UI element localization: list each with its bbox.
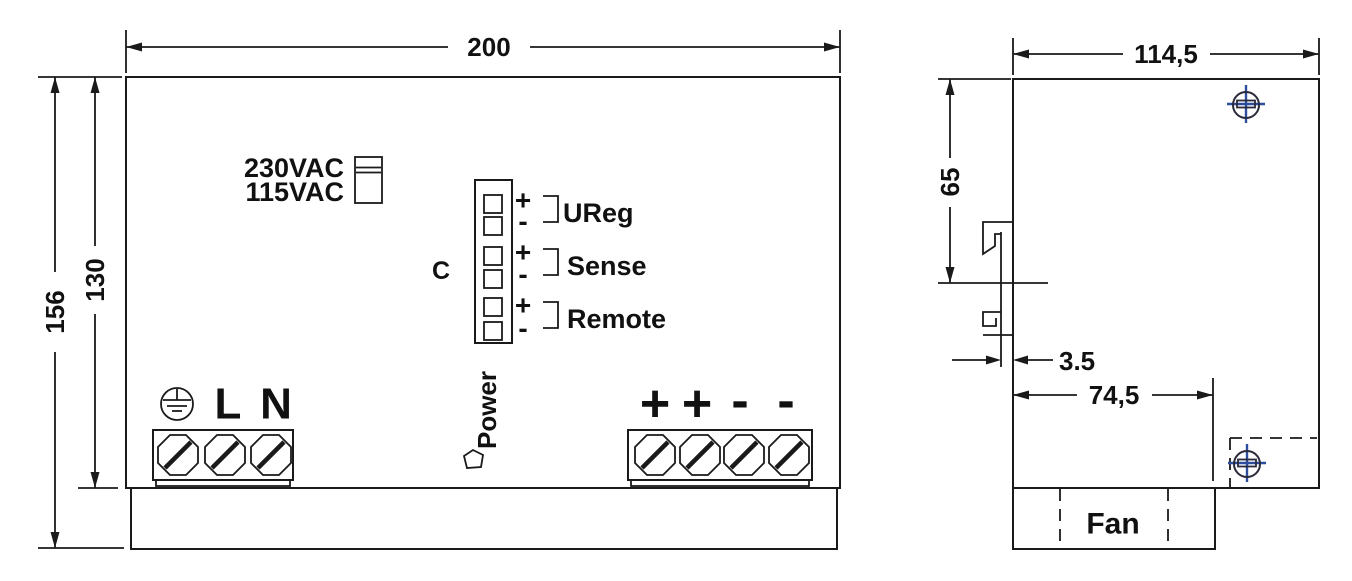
dimension-clip-3-5: 3.5	[952, 346, 1095, 376]
dimension-width-200: 200	[126, 30, 840, 73]
mounting-screw-icon-top[interactable]	[1227, 85, 1265, 123]
pin-group-sense: + - Sense	[515, 237, 647, 290]
minus-label: -	[518, 259, 527, 290]
dimension-height-156: 156	[38, 77, 124, 548]
voltage-option-115: 115VAC	[245, 177, 344, 207]
screw-terminal-icon[interactable]	[251, 435, 291, 475]
arrowhead-right	[1197, 391, 1213, 400]
terminal-block-foot	[156, 480, 290, 486]
mounting-screw-icon-bottom[interactable]	[1228, 444, 1266, 482]
minus-label: -	[518, 313, 527, 344]
dimension-value: 156	[40, 290, 70, 333]
ac-input-terminals: L N	[153, 380, 293, 487]
fan-label: Fan	[1086, 508, 1139, 541]
dimension-din-65: 65	[935, 79, 1048, 283]
connector-pin	[484, 195, 502, 213]
minus-label: -	[518, 206, 527, 237]
voltage-selector: 230VAC 115VAC	[244, 153, 382, 207]
connector-pin	[484, 270, 502, 288]
dimension-value: 74,5	[1089, 380, 1140, 410]
arrowhead-down	[946, 267, 955, 283]
side-view: Fan 114,5	[935, 38, 1319, 549]
arrowhead-up	[91, 77, 100, 93]
connector-label: C	[432, 257, 450, 285]
neutral-terminal-label: N	[260, 380, 292, 429]
dc-plus-label: +	[640, 375, 670, 433]
arrowhead-down	[91, 472, 100, 488]
screw-terminal-icon[interactable]	[680, 435, 720, 475]
arrowhead-right	[824, 43, 840, 52]
dimension-value: 65	[935, 168, 965, 197]
dimension-value: 114,5	[1134, 39, 1198, 69]
connector-body	[475, 180, 512, 343]
signal-label: Remote	[567, 304, 666, 334]
terminal-block-foot	[631, 480, 809, 486]
dc-output-terminals: + + - -	[628, 372, 812, 486]
base-flange	[131, 488, 837, 549]
pair-bracket	[543, 302, 558, 328]
pin-group-ureg: + - UReg	[515, 185, 634, 237]
control-connector: C + - UReg + - Sense + -	[432, 180, 666, 344]
enclosure-side-outline	[1013, 79, 1319, 488]
arrowhead-right	[986, 356, 1001, 365]
screw-terminal-icon[interactable]	[769, 435, 809, 475]
arrowhead-up	[51, 77, 60, 93]
connector-pin	[484, 247, 502, 265]
dimension-height-130: 130	[78, 77, 118, 488]
arrowhead-left	[1013, 356, 1028, 365]
power-indicator: Power	[464, 371, 502, 468]
line-terminal-label: L	[215, 380, 242, 429]
front-view: 200 156 130 230VAC 115VAC	[38, 30, 840, 549]
arrowhead-down	[51, 532, 60, 548]
pair-bracket	[543, 249, 558, 275]
dimension-value: 3.5	[1059, 346, 1095, 376]
earth-ground-icon	[161, 388, 193, 420]
connector-pin	[484, 322, 502, 340]
arrowhead-left	[1013, 50, 1029, 59]
dc-plus-label: +	[682, 375, 712, 433]
dimension-fan-74-5: 74,5	[1013, 378, 1213, 481]
signal-label: Sense	[567, 251, 647, 281]
arrowhead-left	[1013, 391, 1029, 400]
screw-terminal-icon[interactable]	[205, 435, 245, 475]
arrowhead-right	[1303, 50, 1319, 59]
arrowhead-left	[126, 43, 142, 52]
voltage-switch-icon[interactable]	[355, 157, 382, 203]
dimension-value: 130	[80, 258, 110, 301]
power-led-icon	[464, 450, 483, 468]
dimension-value: 200	[467, 32, 510, 62]
fan-section: Fan	[1013, 488, 1215, 549]
connector-pin	[484, 217, 502, 235]
technical-drawing-page: 200 156 130 230VAC 115VAC	[0, 0, 1352, 581]
dc-minus-label: -	[777, 372, 794, 430]
dimension-width-114-5: 114,5	[1013, 38, 1319, 75]
screw-terminal-icon[interactable]	[635, 435, 675, 475]
connector-pin	[484, 298, 502, 316]
dc-minus-label: -	[731, 372, 748, 430]
screw-terminal-icon[interactable]	[158, 435, 198, 475]
screw-terminal-icon[interactable]	[724, 435, 764, 475]
power-supply-dimension-drawing: 200 156 130 230VAC 115VAC	[0, 0, 1352, 581]
pin-group-remote: + - Remote	[515, 290, 666, 344]
signal-label: UReg	[563, 198, 634, 228]
power-label: Power	[472, 371, 502, 449]
arrowhead-up	[946, 79, 955, 95]
din-rail-clip	[983, 222, 1013, 367]
pair-bracket	[543, 196, 558, 222]
